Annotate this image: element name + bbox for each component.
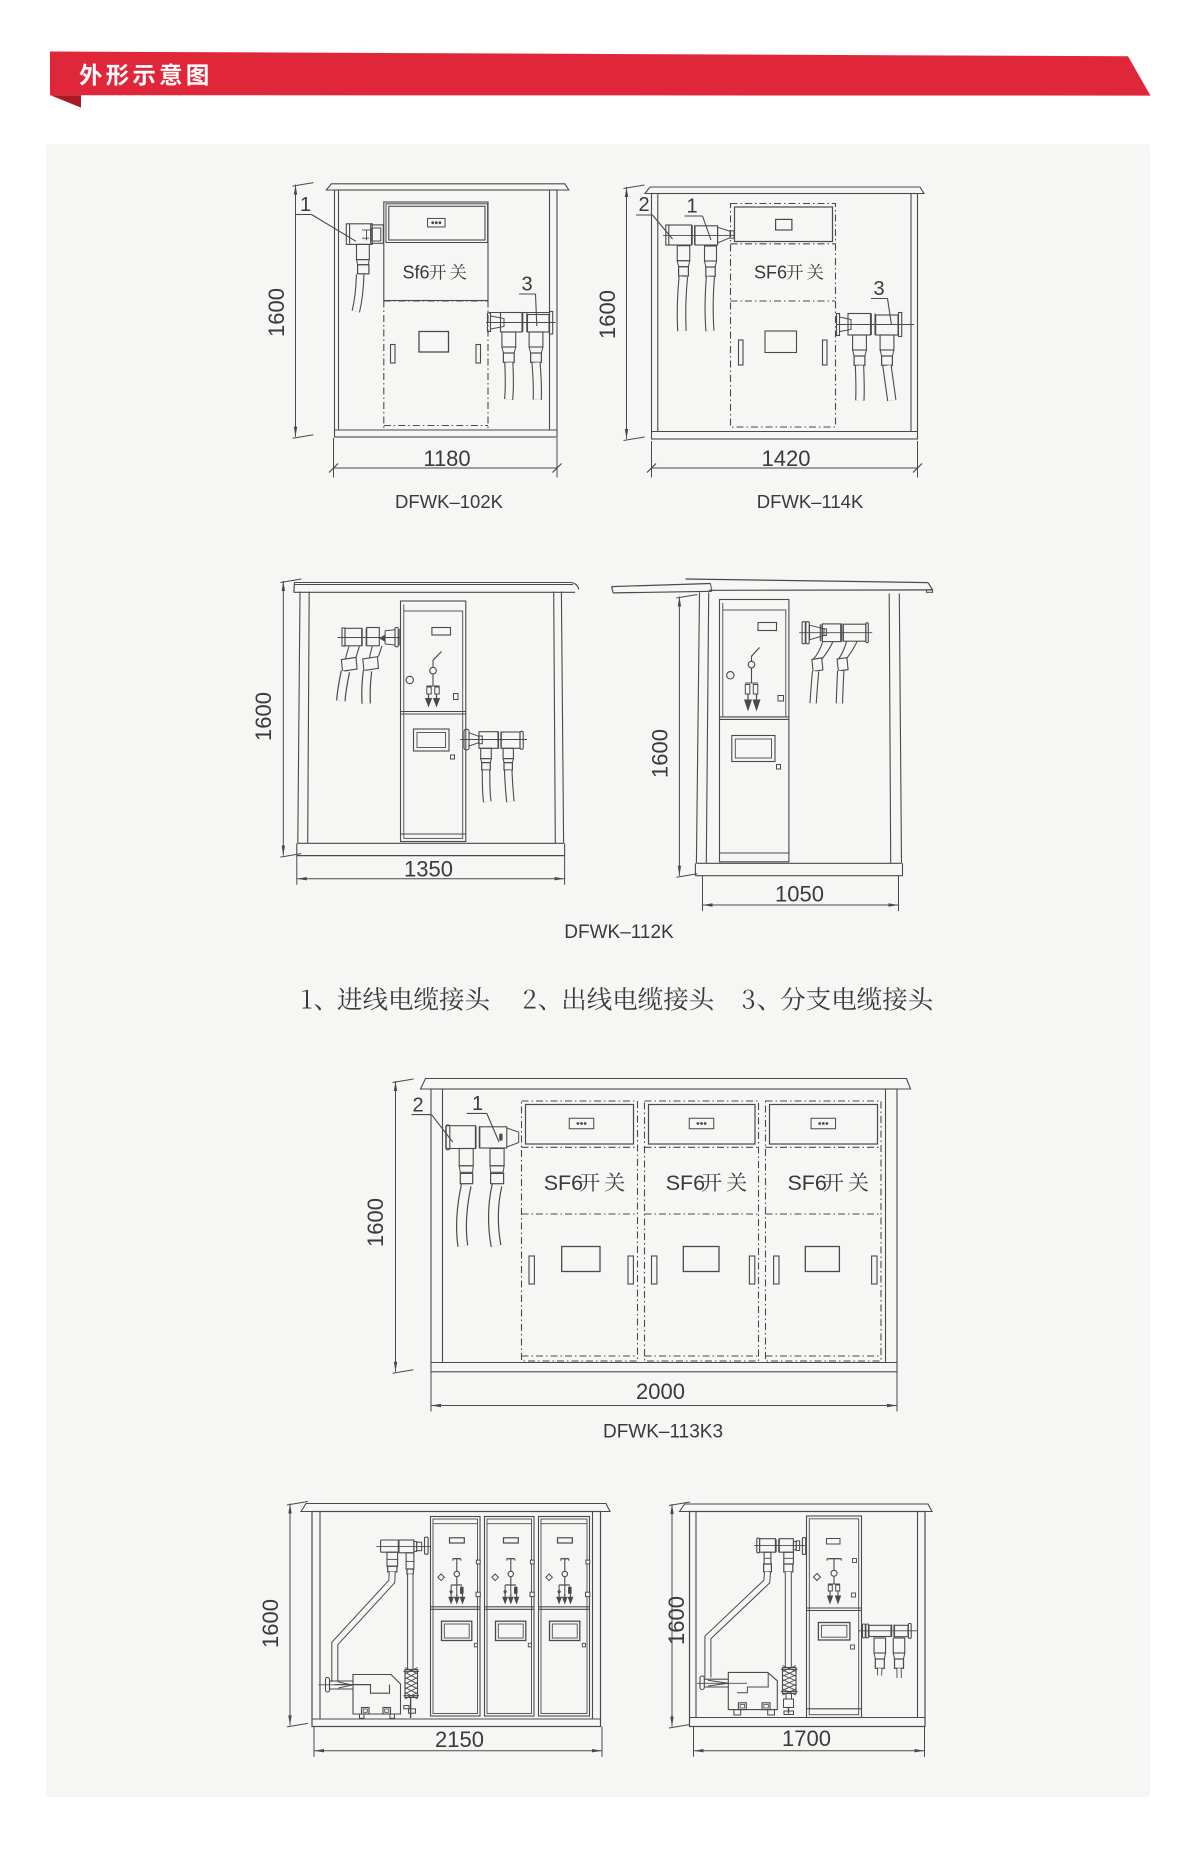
svg-text:SF6: SF6 (544, 1171, 583, 1195)
svg-text:3: 3 (521, 274, 532, 296)
svg-text:2: 2 (638, 194, 649, 216)
svg-text:1420: 1420 (762, 446, 811, 471)
svg-text:1: 1 (300, 194, 311, 216)
svg-text:2000: 2000 (636, 1379, 685, 1404)
svg-text:DFWK–114K: DFWK–114K (757, 491, 864, 512)
svg-text:1600: 1600 (664, 1596, 689, 1645)
svg-text:1700: 1700 (782, 1726, 831, 1751)
svg-text:SF6: SF6 (666, 1171, 705, 1195)
svg-text:1350: 1350 (404, 857, 453, 882)
svg-text:Sf6: Sf6 (403, 263, 430, 283)
svg-text:SF6: SF6 (787, 1171, 826, 1195)
svg-text:DFWK–113K3: DFWK–113K3 (603, 1422, 723, 1443)
svg-text:1180: 1180 (423, 446, 470, 471)
svg-text:1600: 1600 (363, 1198, 388, 1247)
svg-text:1: 1 (472, 1093, 483, 1115)
svg-text:1600: 1600 (251, 692, 276, 741)
svg-text:SF6: SF6 (754, 263, 787, 283)
svg-text:DFWK–102K: DFWK–102K (395, 491, 504, 512)
svg-text:2150: 2150 (435, 1727, 484, 1752)
svg-text:1600: 1600 (264, 288, 289, 337)
svg-text:3: 3 (873, 278, 884, 300)
svg-text:1: 1 (686, 196, 697, 218)
svg-text:1600: 1600 (595, 290, 620, 339)
svg-text:1600: 1600 (647, 729, 672, 778)
svg-text:2: 2 (412, 1095, 423, 1117)
svg-text:DFWK–112K: DFWK–112K (564, 922, 674, 943)
svg-text:1600: 1600 (258, 1599, 283, 1648)
svg-text:1050: 1050 (775, 882, 824, 907)
